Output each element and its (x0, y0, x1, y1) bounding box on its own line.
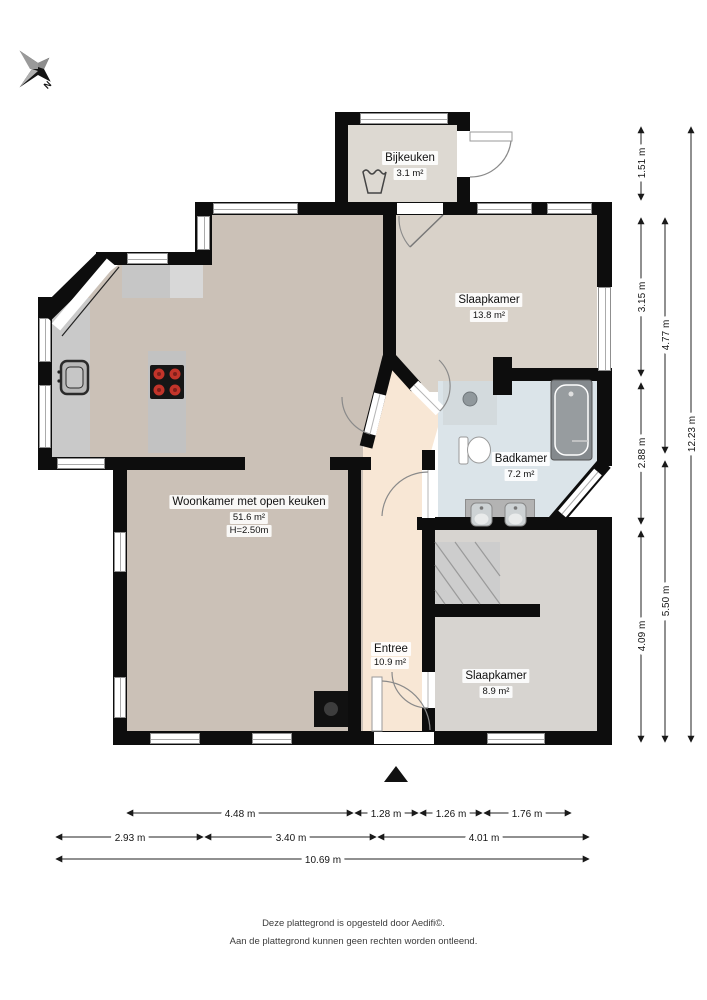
dim-label: 12.23 m (687, 416, 698, 452)
bijkeuken-label: Bijkeuken (382, 151, 438, 165)
dim-label: 5.50 m (661, 586, 672, 617)
wall-entree-east-2 (422, 708, 435, 731)
wall-bijkeuken-right (457, 112, 470, 205)
window (487, 733, 545, 744)
wall-interior-woon-slaap (383, 215, 396, 360)
wall-entree-west (348, 465, 361, 731)
slaapkamer2-area: 8.9 m² (480, 686, 513, 698)
fireplace (314, 691, 348, 727)
entree-label: Entree (371, 642, 411, 656)
dim-label: 4.09 m (637, 621, 648, 652)
wall-right-2 (597, 371, 612, 466)
dim-label: 3.40 m (276, 833, 307, 844)
wall-bijkeuken-left (335, 112, 348, 205)
dim-label: 4.48 m (225, 809, 256, 820)
staircase (435, 542, 500, 604)
footer-disclaimer: Aan de plattegrond kunnen geen rechten w… (0, 936, 707, 947)
dim-label: 2.88 m (637, 438, 648, 469)
dim-label: 1.76 m (512, 809, 543, 820)
wall-right-3 (597, 524, 612, 734)
dim-label: 2.93 m (115, 833, 146, 844)
window (150, 733, 200, 744)
window (213, 203, 298, 214)
bijkeuken-area: 3.1 m² (394, 168, 427, 180)
slaapkamer1-area: 13.8 m² (470, 310, 508, 322)
badkamer-label: Badkamer (492, 452, 550, 466)
compass-north-label: N (42, 79, 54, 91)
dim-label: 10.69 m (305, 855, 341, 866)
dim-label: 4.77 m (661, 320, 672, 351)
slaapkamer1-label: Slaapkamer (455, 293, 522, 307)
dim-label: 4.01 m (469, 833, 500, 844)
wall-stairs-south (422, 604, 540, 617)
window (39, 318, 51, 362)
window (57, 458, 105, 469)
wall-badkamer-west-upper (422, 450, 435, 470)
compass-icon: N (20, 51, 54, 91)
wall-entree-east-1 (422, 530, 435, 672)
kitchen-counter-top-right (170, 265, 203, 298)
window (39, 385, 51, 448)
window (360, 113, 448, 124)
shower-area (443, 381, 497, 425)
dim-label: 1.26 m (436, 809, 467, 820)
window (114, 677, 126, 718)
wall-badkamer-corner (493, 357, 512, 395)
woonkamer-label: Woonkamer met open keuken (169, 495, 328, 509)
window (477, 203, 532, 214)
slaapkamer2-label: Slaapkamer (462, 669, 529, 683)
kitchen-counter-left (52, 298, 90, 457)
window (598, 287, 611, 371)
woonkamer-ceiling-height: H=2.50m (227, 525, 272, 537)
badkamer-area: 7.2 m² (505, 469, 538, 481)
dim-label: 3.15 m (637, 282, 648, 313)
window (114, 532, 126, 572)
dim-label: 1.28 m (371, 809, 402, 820)
window (127, 253, 168, 264)
dim-label: 1.51 m (637, 148, 648, 179)
window (547, 203, 592, 214)
kitchen-island (148, 351, 186, 453)
entree-area: 10.9 m² (371, 657, 409, 669)
window (197, 216, 210, 250)
entrance-marker-icon (384, 766, 408, 782)
wall-badkamer-south (417, 517, 612, 530)
wall-kitchen-stub-left (107, 457, 245, 470)
window (252, 733, 292, 744)
wall-right-1 (597, 215, 612, 287)
footer-attribution: Deze plattegrond is opgesteld door Aedif… (0, 918, 707, 929)
woonkamer-area: 51.6 m² (230, 512, 268, 524)
kitchen-counter-top-left (122, 265, 170, 298)
